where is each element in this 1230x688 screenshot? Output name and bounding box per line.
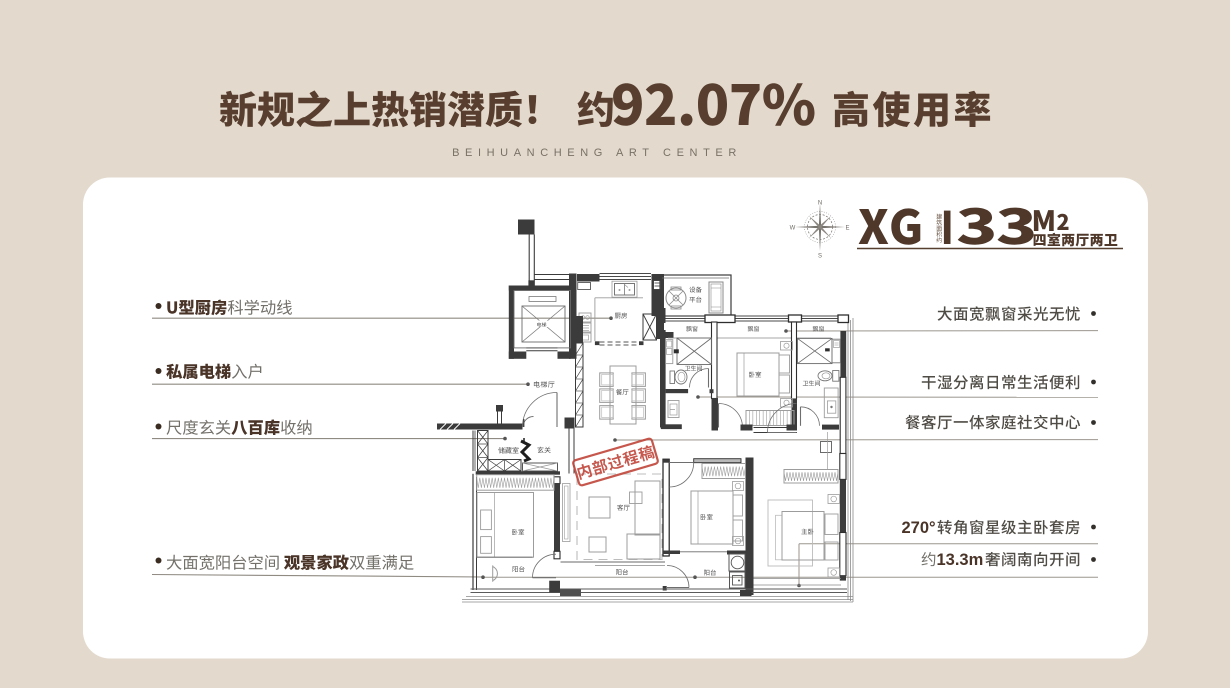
svg-text:BEIHUANCHENG ART CENTER: BEIHUANCHENG ART CENTER — [452, 147, 742, 159]
svg-text:N: N — [818, 201, 822, 207]
svg-text:270°: 270° — [902, 519, 936, 537]
svg-text:13.3m: 13.3m — [937, 551, 984, 569]
svg-text:S: S — [818, 254, 822, 260]
svg-text:W: W — [790, 226, 796, 232]
svg-text:E: E — [845, 226, 849, 232]
